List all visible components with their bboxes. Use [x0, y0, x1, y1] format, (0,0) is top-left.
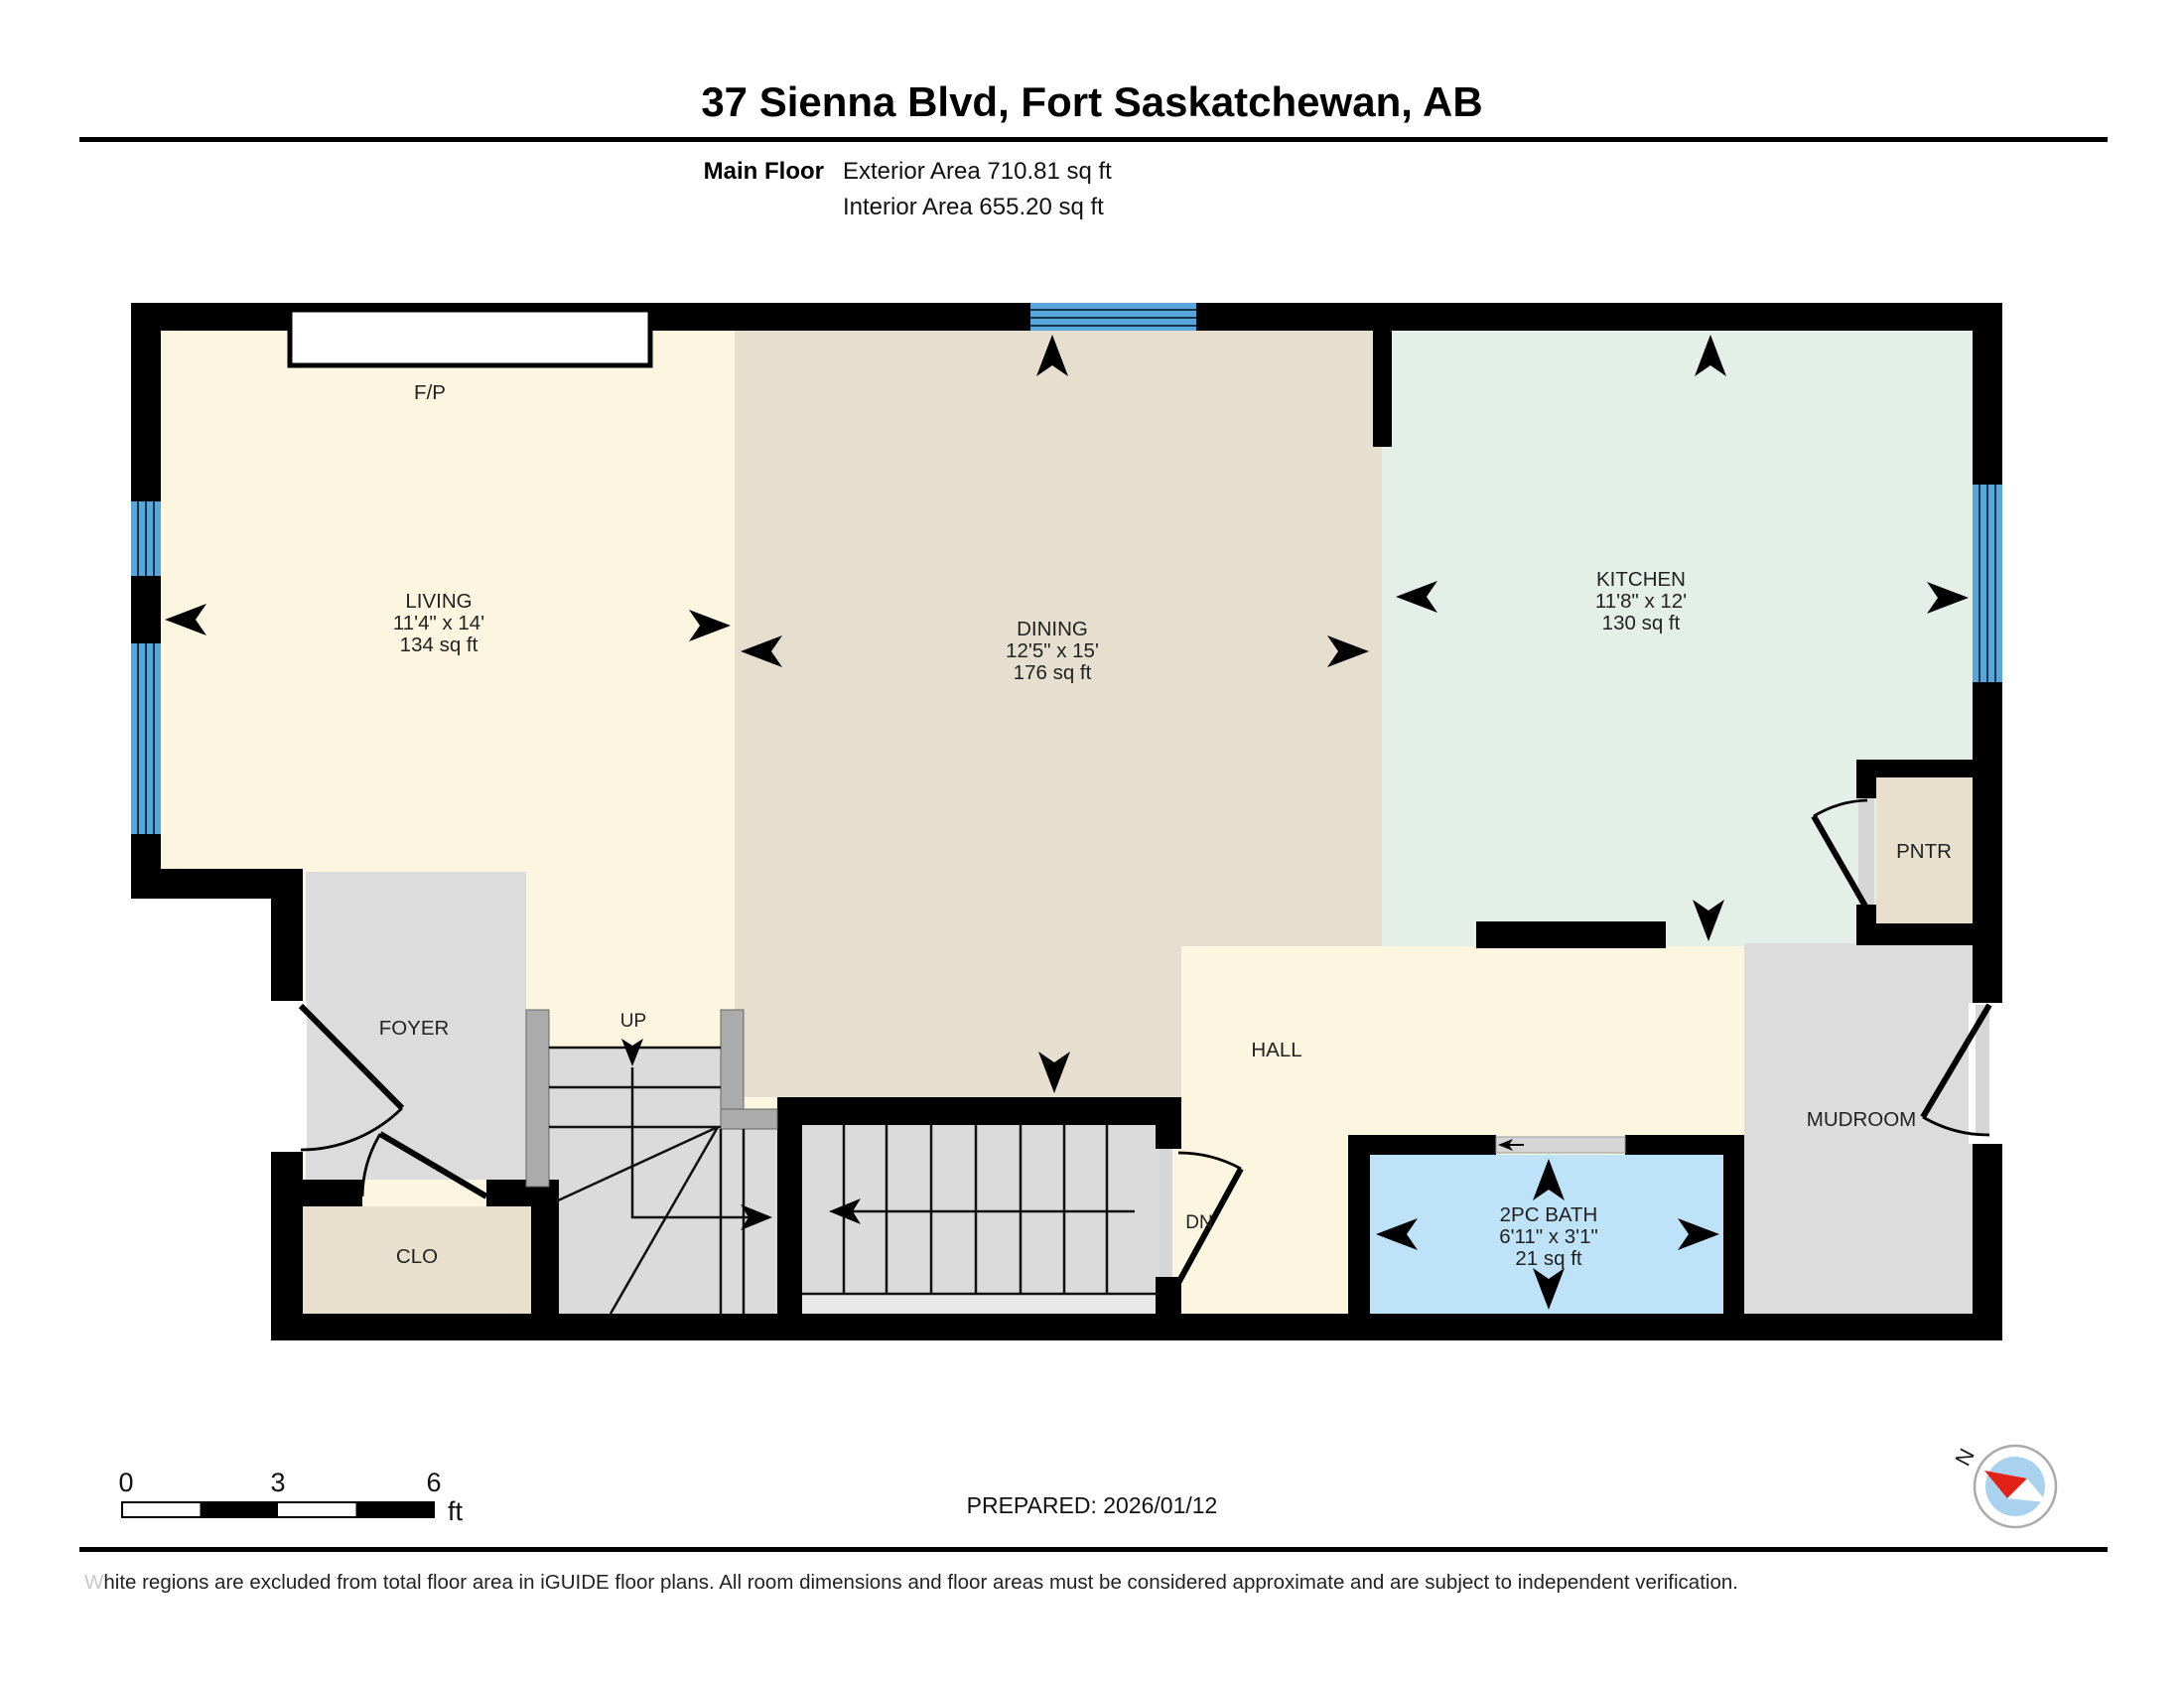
- wall-right: [1973, 303, 2002, 1340]
- wall-bottom: [271, 1314, 2002, 1340]
- dn-door-recess: [1160, 1149, 1172, 1277]
- stairs-up-label: UP: [620, 1011, 646, 1032]
- window-top: [1030, 303, 1196, 331]
- compass-north-label: N: [1950, 1445, 1979, 1471]
- scale-mid: 3: [270, 1468, 285, 1497]
- room-label-closet: CLO: [396, 1245, 438, 1268]
- scale-bar: 0 3 6 ft: [118, 1468, 463, 1526]
- floorplan-canvas: 37 Sienna Blvd, Fort Saskatchewan, AB Ma…: [0, 0, 2184, 1688]
- interior-area-text: Interior Area 655.20 sq ft: [843, 194, 1104, 220]
- room-label-fireplace: F/P: [414, 381, 446, 404]
- page-title: 37 Sienna Blvd, Fort Saskatchewan, AB: [701, 78, 1482, 125]
- front-door-opening: [265, 1001, 307, 1152]
- room-area-dining: 176 sq ft: [1014, 661, 1092, 684]
- stairs-landing: [802, 1294, 1160, 1314]
- room-label-hall: HALL: [1251, 1039, 1301, 1061]
- room-area-kitchen: 130 sq ft: [1602, 612, 1681, 634]
- floorplan-page: 37 Sienna Blvd, Fort Saskatchewan, AB Ma…: [0, 0, 2184, 1688]
- room-dims-kitchen: 11'8" x 12': [1595, 590, 1687, 613]
- scale-start: 0: [118, 1468, 133, 1497]
- wall-dn-jamb-top: [1156, 1125, 1181, 1149]
- wall-kitchen-stub: [1373, 331, 1392, 447]
- room-label-mudroom: MUDROOM: [1807, 1108, 1916, 1131]
- window-left: [131, 501, 161, 834]
- room-area-living: 134 sq ft: [400, 633, 478, 656]
- room-dims-bath: 6'11" x 3'1": [1499, 1225, 1598, 1248]
- room-dims-living: 11'4" x 14': [393, 612, 484, 634]
- header-rule: [79, 137, 2108, 142]
- wall-dn-jamb-bottom: [1156, 1277, 1181, 1314]
- scale-unit: ft: [448, 1496, 464, 1526]
- wall-living-step: [131, 869, 303, 899]
- compass-icon: N: [1950, 1445, 2056, 1527]
- wall-bath-right: [1723, 1135, 1744, 1314]
- pantry-door-recess: [1858, 798, 1874, 905]
- window-right: [1973, 485, 2002, 682]
- scale-end: 6: [426, 1468, 441, 1497]
- wall-bath-left: [1348, 1155, 1370, 1314]
- wall-kitchen-hall: [1476, 921, 1666, 948]
- footer-rule: [79, 1547, 2108, 1552]
- wall-pantry-top: [1856, 760, 1976, 777]
- room-label-bath: 2PC BATH: [1500, 1203, 1598, 1226]
- wall-pantry-bottom: [1856, 923, 2002, 945]
- wall-bath-top-left: [1348, 1135, 1496, 1155]
- wall-closet-right: [531, 1180, 559, 1314]
- wall-closet-top-left: [271, 1180, 362, 1206]
- bath-pocket-door: [1496, 1137, 1625, 1153]
- room-label-foyer: FOYER: [379, 1017, 450, 1040]
- exterior-area-text: Exterior Area 710.81 sq ft: [843, 158, 1112, 185]
- room-area-bath: 21 sq ft: [1515, 1247, 1582, 1270]
- prepared-date: PREPARED: 2026/01/12: [967, 1492, 1218, 1518]
- wall-closet-top-right: [486, 1180, 531, 1206]
- fireplace-alcove: [290, 310, 650, 365]
- stairs-down-label: DN: [1185, 1212, 1212, 1233]
- disclaimer-text: White regions are excluded from total fl…: [84, 1571, 1738, 1594]
- wall-stair-divider: [777, 1125, 802, 1340]
- floor-label: Main Floor: [704, 158, 824, 185]
- room-label-kitchen: KITCHEN: [1596, 568, 1686, 591]
- room-label-dining: DINING: [1017, 618, 1088, 640]
- wall-stairwell-top: [777, 1097, 1181, 1125]
- room-dims-dining: 12'5" x 15': [1006, 639, 1099, 662]
- room-label-living: LIVING: [405, 590, 472, 613]
- room-label-pantry: PNTR: [1896, 840, 1952, 863]
- wall-pantry-left-upper: [1856, 777, 1876, 798]
